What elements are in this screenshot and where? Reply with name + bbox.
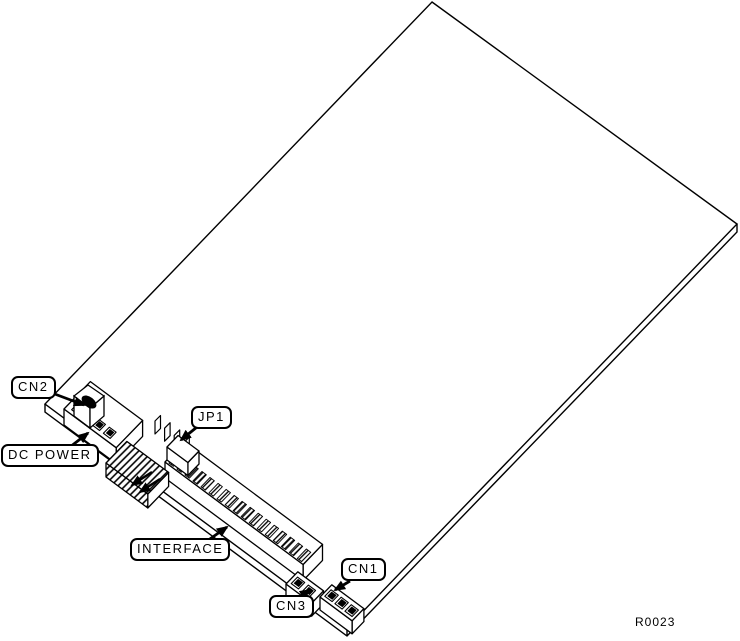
label-interface: INTERFACE xyxy=(130,538,230,561)
label-cn3: CN3 xyxy=(269,595,314,618)
drawing-number: R0023 xyxy=(635,615,675,629)
board-line-art xyxy=(0,0,740,641)
label-cn2: CN2 xyxy=(11,376,56,399)
label-cn1: CN1 xyxy=(341,558,386,581)
pcb-diagram: CN2 DC POWER JP1 INTERFACE CN3 CN1 R0023 xyxy=(0,0,740,641)
label-dc-power: DC POWER xyxy=(1,444,99,467)
board-top-surface xyxy=(45,2,737,628)
label-jp1: JP1 xyxy=(191,406,232,429)
